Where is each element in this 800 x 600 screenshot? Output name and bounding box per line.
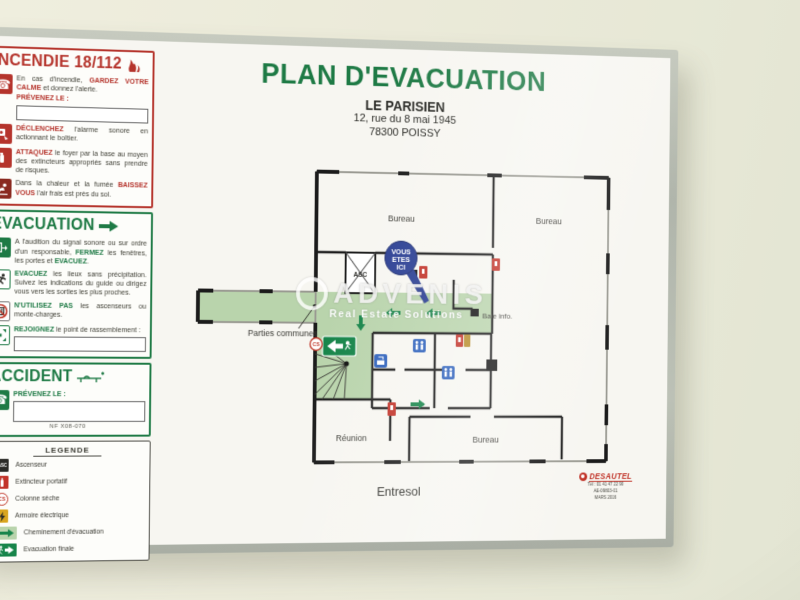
legend-electrical-icon [0, 510, 8, 523]
vendor-name: DESAUTEL [589, 471, 632, 482]
norm-reference: NF X08-070 [0, 424, 145, 430]
service-sink-icon [374, 354, 387, 368]
phone-icon: ☎ [0, 74, 13, 95]
legend-evacuation-route-icon [0, 527, 17, 540]
evacuation-plan-board: INCENDIE 18/112 ☎ En cas d'incendie, GAR… [0, 35, 670, 547]
room-bureau-top-right: Bureau [536, 216, 562, 226]
legend-asc-icon: ASC [0, 459, 9, 472]
evacuation-section: EVACUATION A l'audition du signal sonore… [0, 210, 153, 359]
running-man-icon [0, 269, 11, 289]
evacuation-item-ascenseur: N'UTILISEZ PAS les ascenseurs ou monte-c… [0, 301, 146, 322]
desautel-logo-icon [580, 473, 588, 482]
accident-title-row: ACCIDENT [0, 368, 146, 386]
legende-title: LEGENDE [0, 446, 146, 455]
legend-item-armoire: Armoire électrique [0, 509, 145, 523]
accident-prevenez-label: PRÉVENEZ LE : [13, 390, 66, 398]
incendie-title: INCENDIE 18/112 [0, 52, 122, 74]
vendor-block: DESAUTEL Tél : 01 41 47 22 90 AE-09803-0… [570, 471, 641, 501]
floor-plan: ASC CS [189, 157, 618, 481]
incendie-item-crouch-text: Dans la chaleur et la fumée BAISSEZ VOUS… [15, 179, 147, 200]
evacuation-item-ascenseur-text: N'UTILISEZ PAS les ascenseurs ou monte-c… [14, 301, 146, 320]
plan-header: PLAN D'EVACUATION LE PARISIEN 12, rue du… [219, 57, 586, 145]
phone-glyph: ☎ [0, 77, 11, 90]
evacuation-item-rassemblement: REJOIGNEZ le point de rassemblement : [0, 325, 146, 352]
legend-item-evacuation-finale: Evacuation finale [0, 542, 145, 557]
wc-icon-2 [442, 366, 455, 379]
vendor-date: MARS 2016 [570, 495, 641, 502]
room-bureau-bottom: Bureau [472, 435, 498, 445]
incendie-item-extinguisher-text: ATTAQUEZ le foyer par la base au moyen d… [16, 148, 148, 178]
accident-title: ACCIDENT [0, 368, 73, 386]
evacuation-item-rassemblement-text: REJOIGNEZ le point de rassemblement : [14, 325, 146, 335]
incendie-item-crouch: Dans la chaleur et la fumée BAISSEZ VOUS… [0, 179, 148, 202]
room-baie-info: Baie info. [482, 312, 512, 321]
extinguisher-markers [388, 257, 501, 416]
legend-item-colonne-seche: CS Colonne sèche [0, 492, 145, 506]
legend-item-ascenseur: ASC Ascenseur [0, 458, 146, 472]
evacuation-item-fermez: A l'audition du signal sonore ou sur ord… [0, 238, 147, 268]
accident-section: ACCIDENT ☎ PRÉVENEZ LE : NF X08-070 [0, 362, 151, 437]
corridor-annex-fill [198, 290, 316, 322]
pillar-small [471, 309, 478, 317]
legend-cs-icon: CS [0, 493, 8, 506]
emergency-phone-icon: ☎ [0, 390, 9, 410]
safety-instructions-panel: INCENDIE 18/112 ☎ En cas d'incendie, GAR… [0, 46, 155, 563]
legend-item-cheminement: Cheminement d'évacuation [0, 525, 145, 540]
incendie-section: INCENDIE 18/112 ☎ En cas d'incendie, GAR… [0, 46, 155, 209]
no-elevator-icon [0, 301, 10, 321]
svg-text:CS: CS [312, 343, 319, 349]
room-reunion: Réunion [336, 433, 367, 443]
prevenez-label: PRÉVENEZ LE : [16, 94, 68, 103]
asc-label: ASC [354, 272, 368, 279]
exit-door-icon [0, 238, 11, 258]
floor-label: Entresol [357, 484, 440, 499]
evacuation-title: EVACUATION [0, 216, 95, 236]
right-arrow-icon [98, 219, 119, 233]
wc-icon-1 [413, 339, 426, 353]
incendie-item-alarm-text: DÉCLENCHEZ l'alarme sonore en actionnant… [16, 124, 148, 145]
sign-frame: INCENDIE 18/112 ☎ En cas d'incendie, GAR… [0, 26, 678, 556]
evacuation-item-evacuez: EVACUEZ les lieux sans précipitation. Su… [0, 269, 147, 298]
rassemblement-entry-box [14, 336, 146, 352]
legend-extinguisher-icon [0, 476, 9, 489]
parties-communes-label: Parties communes [248, 328, 318, 338]
evacuation-item-fermez-text: A l'audition du signal sonore ou sur ord… [15, 238, 147, 267]
incendie-item-alert: ☎ En cas d'incendie, GARDEZ VOTRE CALME … [0, 74, 149, 124]
corridor-fill [315, 292, 491, 334]
stretcher-icon [76, 370, 105, 384]
incendie-item-alarm: DÉCLENCHEZ l'alarme sonore en actionnant… [0, 123, 148, 147]
crouching-person-icon [0, 179, 12, 199]
alarm-button-icon [0, 123, 12, 143]
svg-text:ICI: ICI [396, 263, 405, 272]
room-bureau-top-left: Bureau [388, 214, 415, 224]
page-title: PLAN D'EVACUATION [219, 57, 586, 100]
accident-entry-box [13, 401, 145, 422]
evacuation-item-evacuez-text: EVACUEZ les lieux sans précipitation. Su… [14, 270, 146, 299]
extinguisher-icon [0, 147, 12, 167]
accident-item-prevenez: ☎ PRÉVENEZ LE : [0, 390, 145, 422]
incendie-title-row: INCENDIE 18/112 [0, 52, 149, 75]
pillar [486, 359, 497, 370]
prevenez-entry-box [16, 105, 148, 123]
exit-sign [322, 336, 356, 356]
evacuation-title-row: EVACUATION [0, 216, 147, 236]
wall-photo-scene: INCENDIE 18/112 ☎ En cas d'incendie, GAR… [0, 0, 800, 600]
legend-final-exit-icon [0, 544, 17, 557]
legende-section: LEGENDE ASC Ascenseur Extincteur portati… [0, 441, 151, 563]
colonne-seche-icon: CS [310, 338, 322, 351]
phone-glyph: ☎ [0, 393, 8, 406]
elevator-asc: ASC [345, 252, 375, 293]
flame-icon [126, 57, 142, 73]
incendie-item-extinguisher: ATTAQUEZ le foyer par la base au moyen d… [0, 147, 148, 178]
legend-item-extincteur: Extincteur portatif [0, 475, 146, 489]
assembly-point-icon [0, 325, 10, 345]
